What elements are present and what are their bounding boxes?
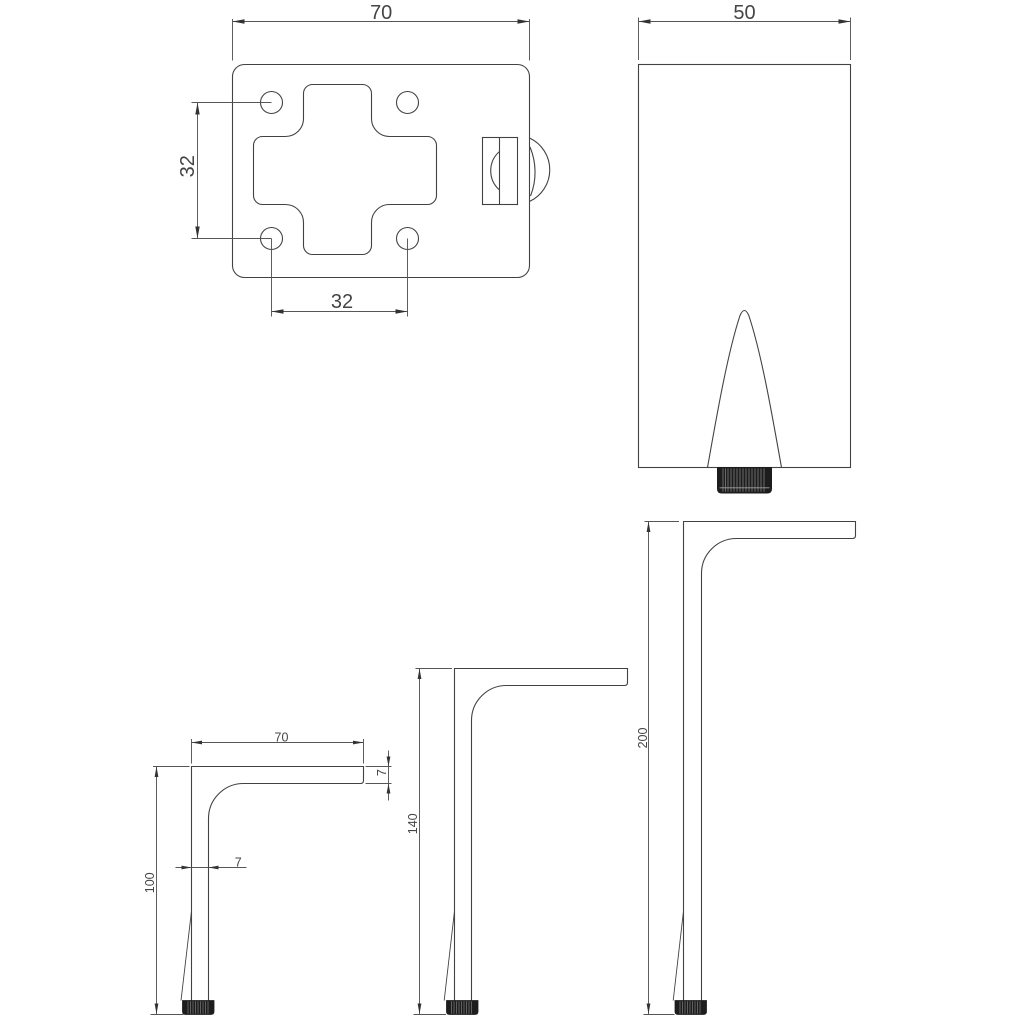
- svg-text:70: 70: [275, 730, 289, 744]
- svg-text:32: 32: [177, 155, 199, 177]
- svg-text:7: 7: [235, 856, 242, 870]
- svg-text:200: 200: [636, 728, 650, 749]
- svg-text:100: 100: [143, 872, 157, 893]
- svg-text:70: 70: [370, 2, 392, 24]
- svg-text:32: 32: [331, 291, 353, 313]
- svg-text:140: 140: [406, 813, 420, 834]
- svg-text:50: 50: [733, 2, 755, 24]
- svg-text:7: 7: [375, 769, 389, 776]
